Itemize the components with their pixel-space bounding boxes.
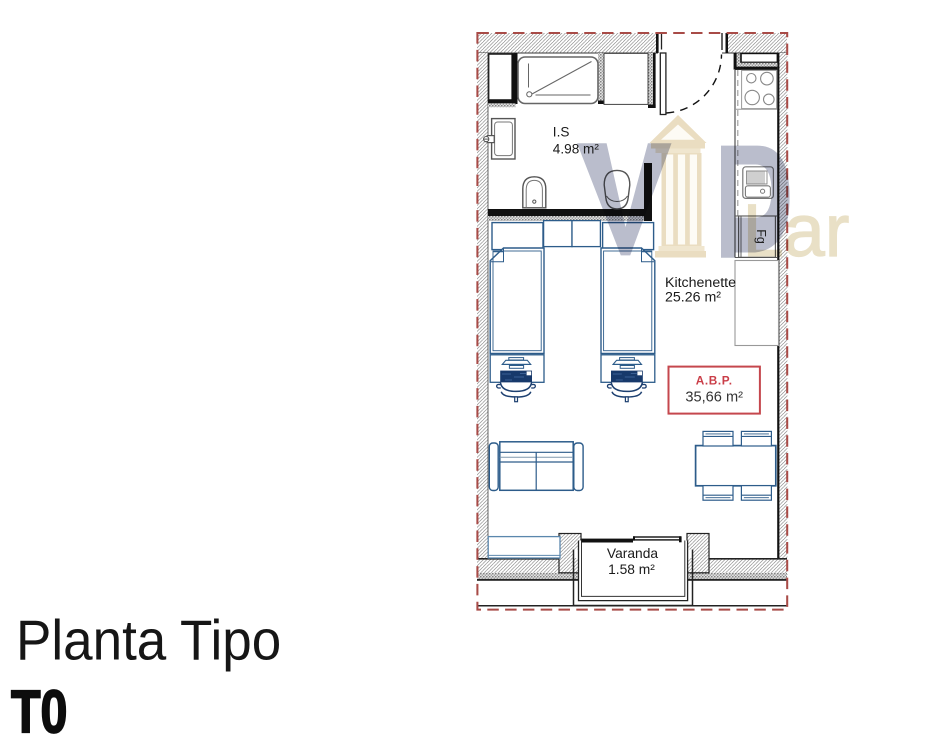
svg-text:T0: T0 [11, 677, 67, 735]
svg-text:25.26 m²: 25.26 m² [665, 290, 721, 306]
svg-text:Varanda: Varanda [607, 546, 658, 561]
svg-text:35,66 m²: 35,66 m² [685, 390, 743, 406]
svg-text:I.S: I.S [553, 125, 570, 140]
svg-text:Fg: Fg [754, 229, 768, 244]
svg-text:A.B.P.: A.B.P. [696, 374, 733, 388]
svg-text:Planta Tipo: Planta Tipo [16, 608, 281, 672]
svg-text:1.58 m²: 1.58 m² [608, 562, 655, 577]
svg-text:Kitchenette: Kitchenette [665, 275, 736, 291]
svg-text:4.98 m²: 4.98 m² [553, 142, 600, 157]
